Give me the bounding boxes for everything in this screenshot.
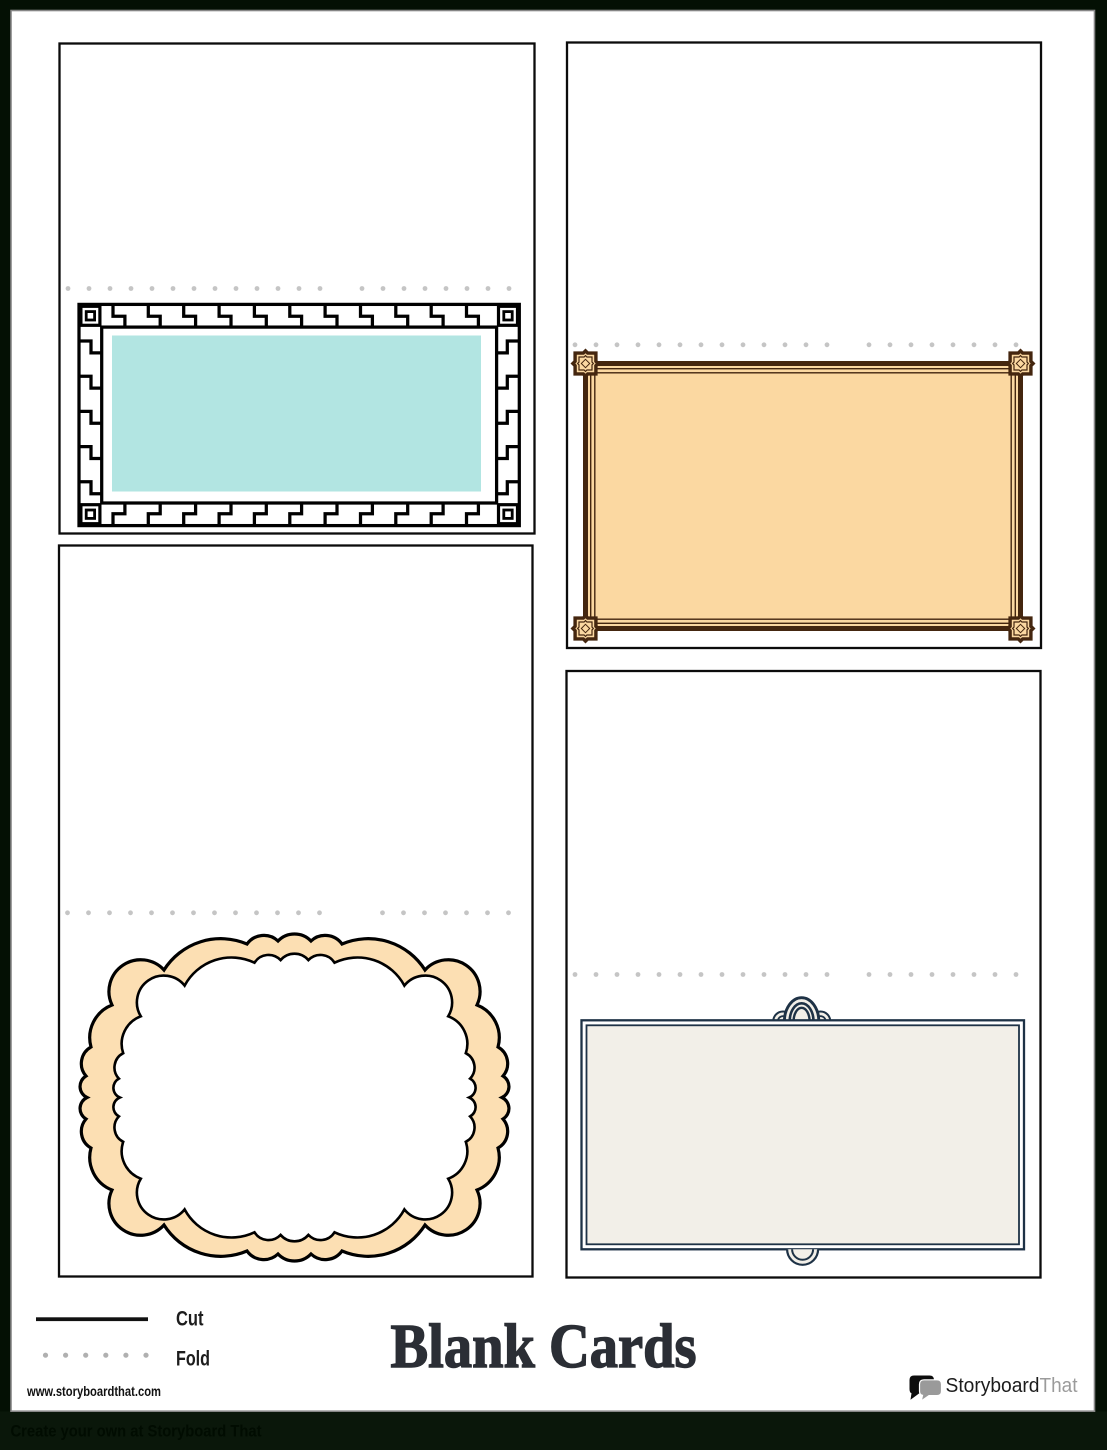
svg-text:Create your own at Storyboard: Create your own at Storyboard That [11,1423,262,1441]
svg-text:www.storyboardthat.com: www.storyboardthat.com [26,1384,161,1399]
svg-text:StoryboardThat: StoryboardThat [946,1374,1078,1397]
svg-text:Blank Cards: Blank Cards [391,1313,697,1381]
svg-text:Cut: Cut [176,1306,204,1330]
svg-text:Fold: Fold [176,1347,210,1371]
